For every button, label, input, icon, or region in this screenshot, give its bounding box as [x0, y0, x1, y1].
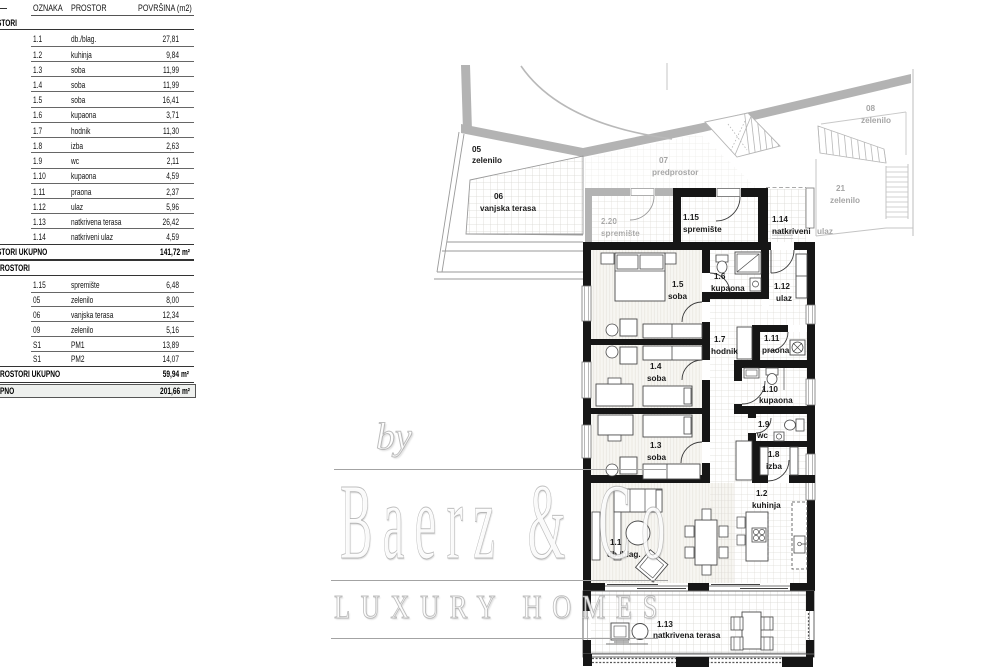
svg-text:1.4: 1.4: [650, 362, 662, 371]
svg-text:soba: soba: [647, 374, 667, 383]
svg-text:soba: soba: [668, 292, 688, 301]
svg-text:1.3: 1.3: [650, 441, 662, 450]
svg-text:ulaz: ulaz: [817, 227, 833, 236]
svg-text:1.2: 1.2: [756, 489, 768, 498]
svg-text:kupaona: kupaona: [759, 396, 793, 405]
svg-text:05: 05: [472, 145, 482, 154]
svg-text:natkrivena terasa: natkrivena terasa: [653, 631, 721, 640]
svg-text:predprostor: predprostor: [652, 168, 699, 177]
svg-text:ulaz: ulaz: [776, 294, 792, 303]
svg-text:1.12: 1.12: [774, 282, 790, 291]
svg-text:kuhinja: kuhinja: [752, 501, 781, 510]
svg-text:1.14: 1.14: [772, 215, 788, 224]
svg-text:1.7: 1.7: [714, 335, 726, 344]
svg-text:vanjska terasa: vanjska terasa: [480, 204, 536, 213]
svg-text:izba: izba: [766, 462, 782, 471]
svg-text:spremište: spremište: [683, 225, 722, 234]
svg-text:1.15: 1.15: [683, 213, 699, 222]
svg-text:kupaona: kupaona: [711, 284, 745, 293]
svg-text:1.10: 1.10: [762, 385, 778, 394]
svg-text:wc: wc: [756, 431, 768, 440]
svg-text:natkriveni: natkriveni: [772, 227, 811, 236]
svg-text:1.11: 1.11: [764, 334, 780, 343]
svg-text:1.5: 1.5: [672, 280, 684, 289]
svg-text:zelenilo: zelenilo: [472, 156, 502, 165]
svg-text:praona: praona: [762, 346, 790, 355]
svg-text:07: 07: [659, 156, 669, 165]
svg-text:1.9: 1.9: [758, 420, 770, 429]
svg-text:21: 21: [836, 184, 846, 193]
svg-text:1.6: 1.6: [714, 272, 726, 281]
svg-text:1.8: 1.8: [768, 450, 780, 459]
svg-text:hodnik: hodnik: [711, 347, 738, 356]
svg-text:06: 06: [494, 192, 504, 201]
svg-text:zelenilo: zelenilo: [861, 116, 891, 125]
svg-text:08: 08: [866, 104, 876, 113]
svg-text:zelenilo: zelenilo: [830, 196, 860, 205]
